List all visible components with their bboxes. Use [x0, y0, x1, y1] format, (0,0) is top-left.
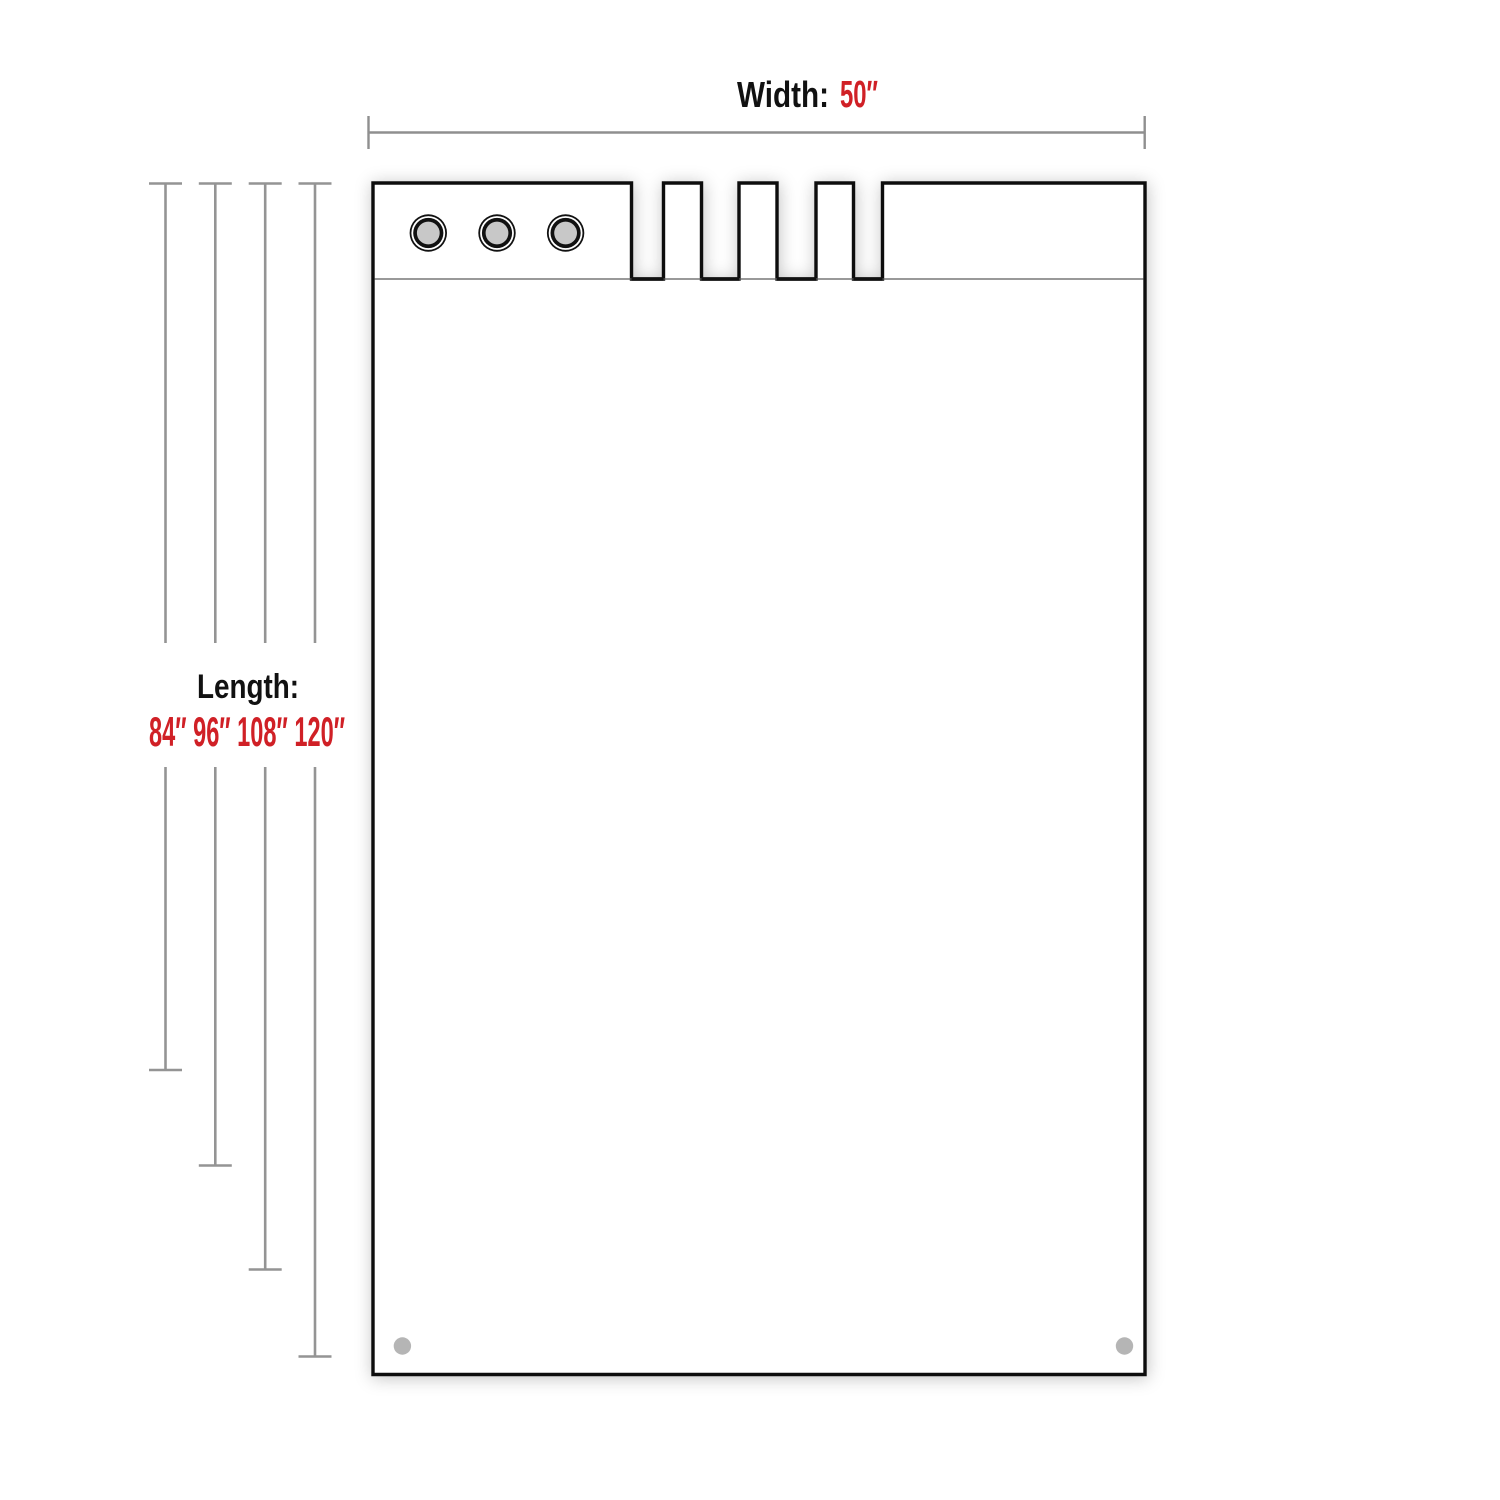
svg-text:Width:: Width: [737, 74, 829, 115]
svg-text:Length:: Length: [197, 668, 299, 706]
svg-text:50″: 50″ [840, 74, 878, 116]
svg-text:84″ 96″ 108″ 120″: 84″ 96″ 108″ 120″ [149, 708, 345, 755]
